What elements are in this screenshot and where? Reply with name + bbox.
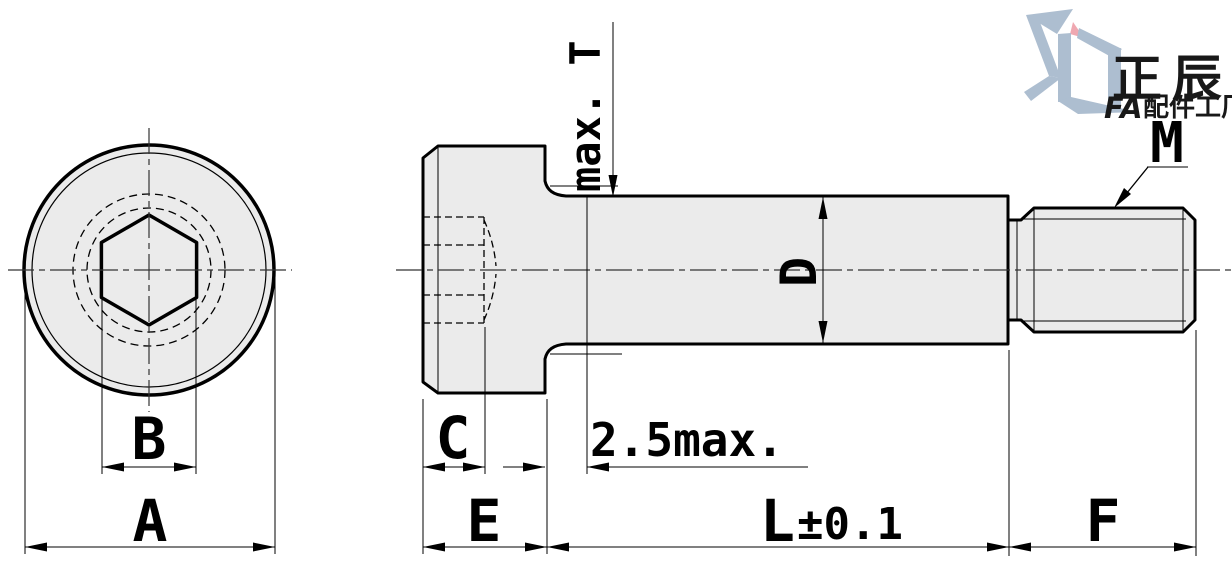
dim-label-a: A	[133, 487, 168, 555]
technical-drawing-page: 正辰 FA 配件工厂	[0, 0, 1232, 567]
dim-label-max-t: max. T	[561, 40, 610, 192]
dim-label-b: B	[132, 405, 167, 473]
front-view	[8, 128, 292, 412]
dim-label-l-tolerance: ±0.1	[797, 499, 903, 550]
dim-label-2-5max: 2.5max.	[590, 413, 784, 467]
dim-label-f: F	[1086, 487, 1121, 555]
dim-label-e: E	[467, 487, 502, 555]
brand-prefix: FA	[1104, 91, 1143, 125]
dim-label-l: L	[760, 487, 795, 555]
callout-thread-size: M	[1114, 111, 1188, 208]
dim-label-c: C	[436, 404, 471, 472]
dim-label-d: D	[770, 257, 828, 287]
dim-label-m: M	[1150, 111, 1184, 176]
shoulder-screw-drawing: 正辰 FA 配件工厂	[0, 0, 1232, 567]
dimension-thread-length: F	[1009, 330, 1196, 556]
brand-logo: 正辰 FA 配件工厂	[1024, 9, 1232, 125]
dimension-fillet-height: max. T	[561, 22, 618, 197]
